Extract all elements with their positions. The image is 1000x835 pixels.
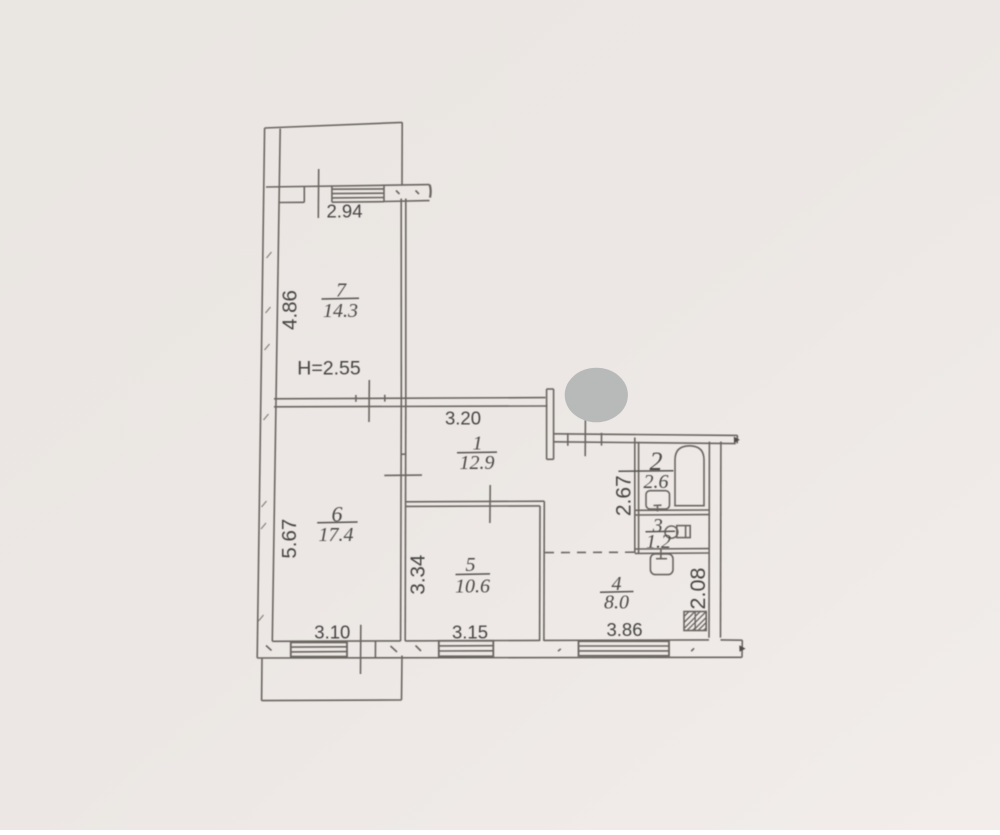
- svg-text:5.67: 5.67: [278, 519, 301, 559]
- svg-text:H=2.55: H=2.55: [297, 358, 361, 380]
- svg-text:1.2: 1.2: [646, 531, 671, 553]
- svg-text:10.6: 10.6: [455, 576, 490, 598]
- svg-text:5: 5: [466, 554, 476, 576]
- svg-text:2.6: 2.6: [644, 471, 669, 493]
- svg-text:3.34: 3.34: [407, 555, 430, 595]
- svg-text:4.86: 4.86: [278, 290, 301, 330]
- svg-text:14.3: 14.3: [323, 300, 358, 322]
- svg-text:12.9: 12.9: [460, 452, 495, 474]
- svg-text:2.67: 2.67: [613, 475, 636, 516]
- svg-text:2.94: 2.94: [326, 201, 362, 222]
- svg-text:3.20: 3.20: [445, 408, 481, 429]
- svg-text:3.15: 3.15: [452, 622, 488, 643]
- svg-text:17.4: 17.4: [319, 524, 354, 546]
- svg-text:8.0: 8.0: [604, 592, 629, 614]
- svg-text:3.86: 3.86: [606, 619, 642, 640]
- svg-text:3.10: 3.10: [314, 622, 350, 643]
- svg-text:2.08: 2.08: [686, 568, 710, 610]
